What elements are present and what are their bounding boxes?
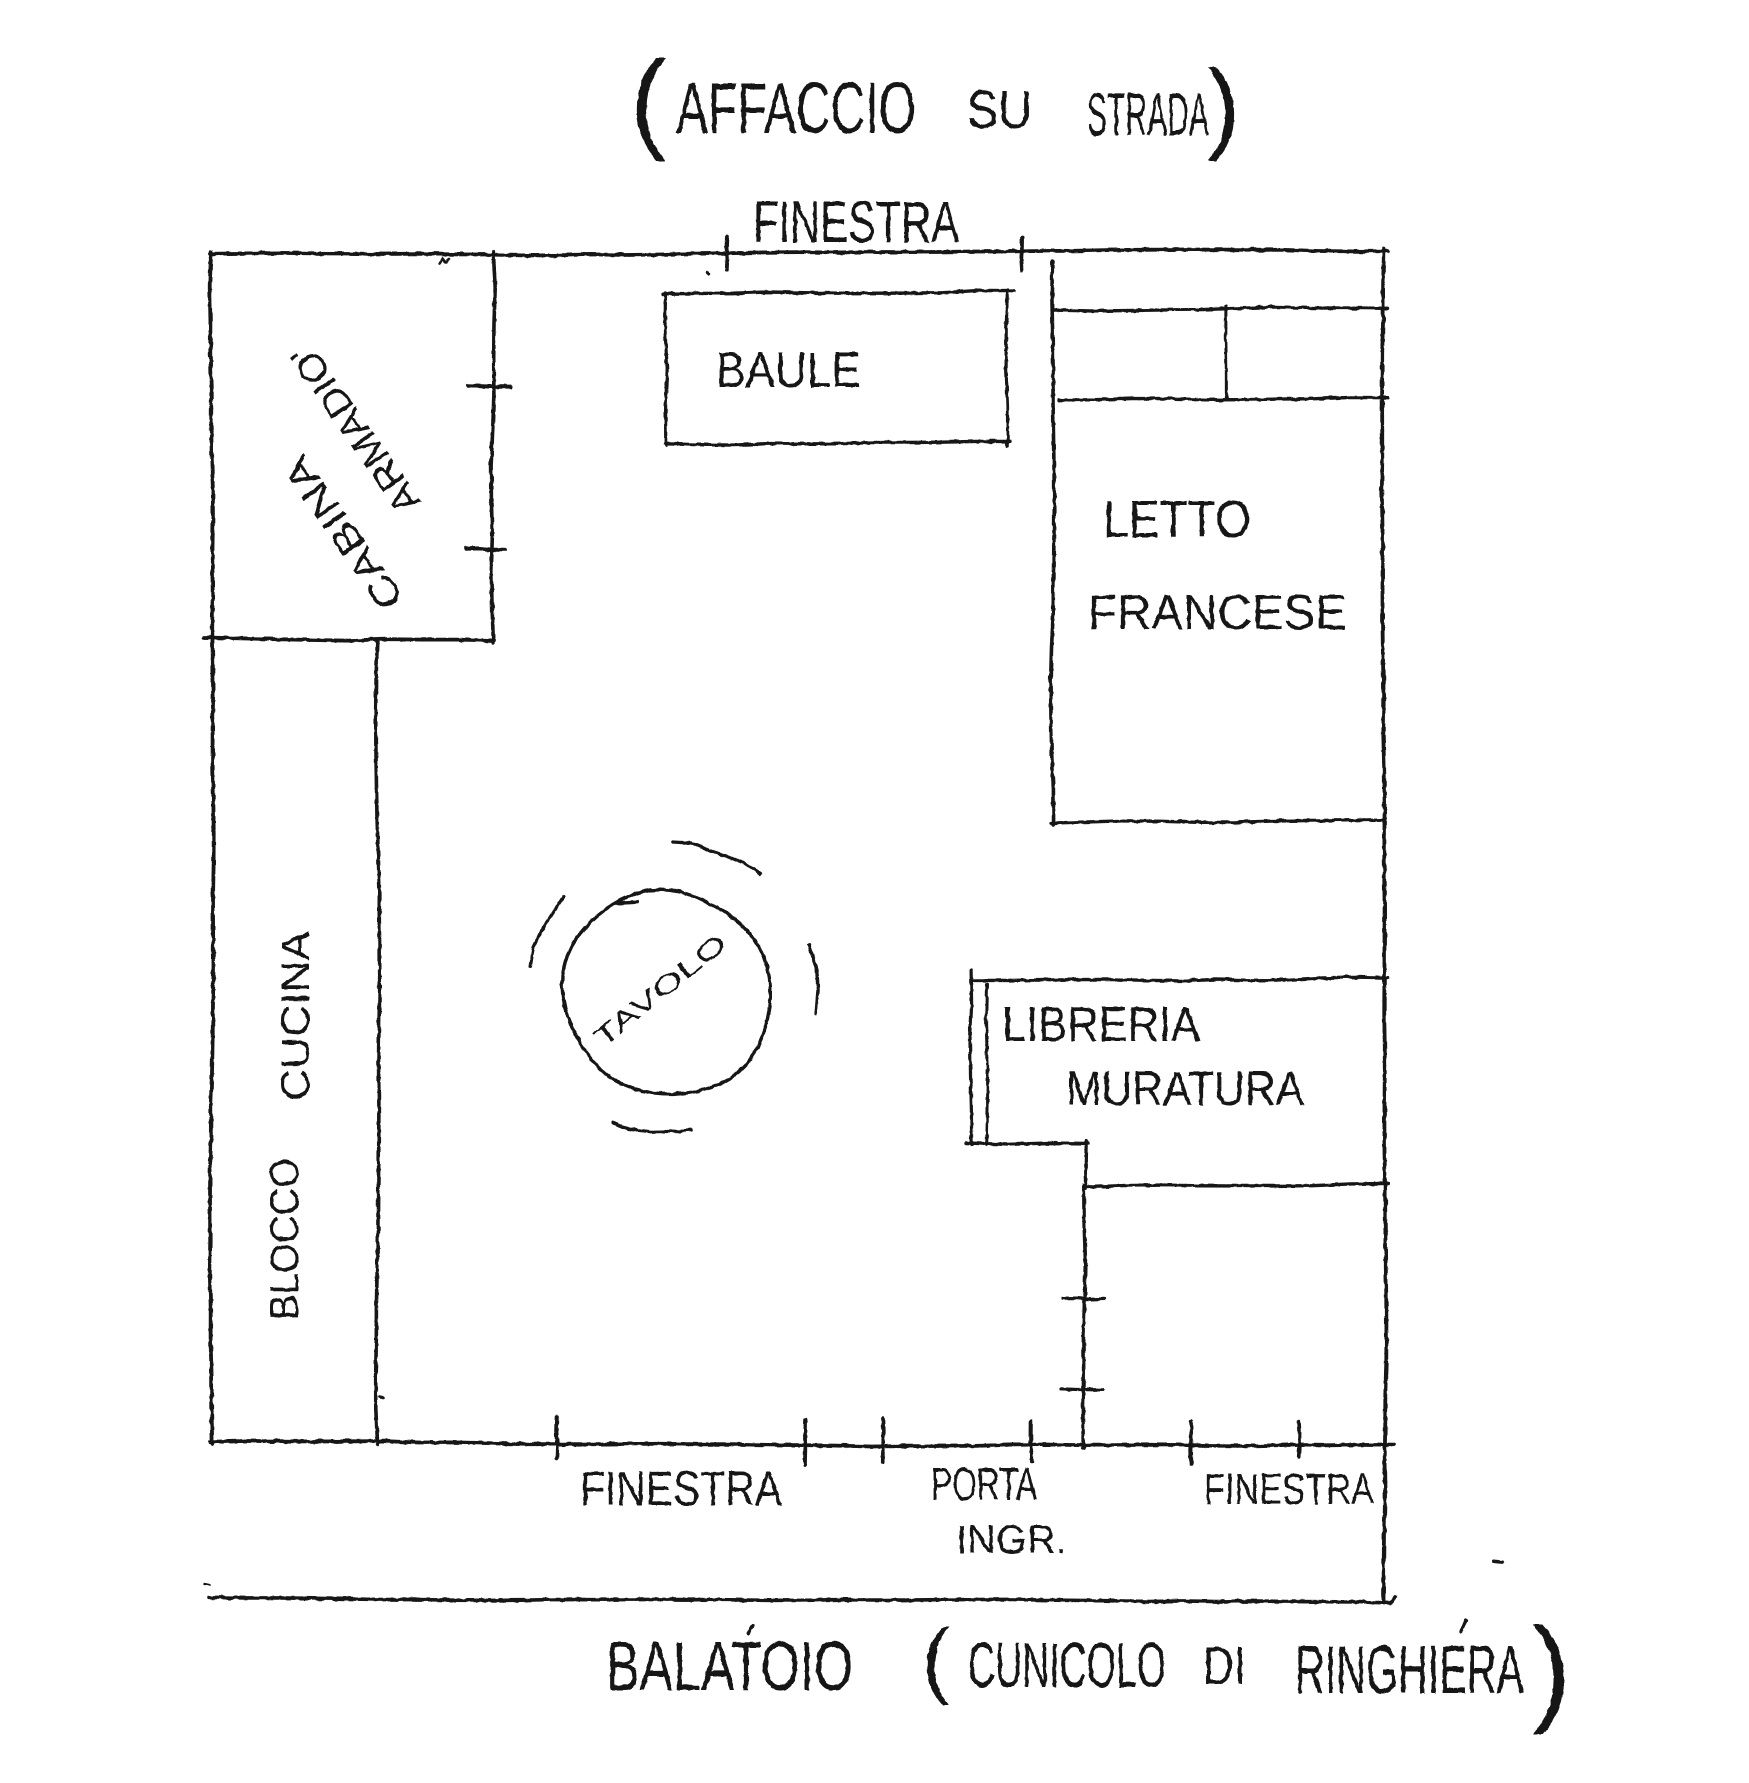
svg-text:BALATOIO: BALATOIO <box>606 1627 853 1705</box>
svg-text:(: ( <box>922 1612 950 1706</box>
svg-text:FINESTRA: FINESTRA <box>1204 1465 1375 1514</box>
svg-text:FRANCESE: FRANCESE <box>1088 586 1347 640</box>
svg-text:TAVOLO: TAVOLO <box>588 927 733 1052</box>
svg-text:SU: SU <box>967 80 1032 140</box>
svg-text:STRADA: STRADA <box>1087 81 1209 148</box>
svg-text:RINGHIERA: RINGHIERA <box>1295 1632 1524 1708</box>
svg-text:FINESTRA: FINESTRA <box>753 190 959 255</box>
svg-text:DI: DI <box>1203 1636 1246 1696</box>
svg-text:CUCINA: CUCINA <box>274 931 318 1101</box>
svg-text:BAULE: BAULE <box>716 342 861 398</box>
svg-text:): ) <box>1532 1604 1571 1736</box>
svg-text:INGR.: INGR. <box>956 1518 1067 1562</box>
svg-text:MURATURA: MURATURA <box>1066 1063 1304 1116</box>
svg-text:AFFACCIO: AFFACCIO <box>676 69 916 149</box>
svg-text:LETTO: LETTO <box>1103 491 1251 549</box>
svg-text:PORTA: PORTA <box>931 1458 1037 1510</box>
svg-text:(: ( <box>630 39 667 162</box>
svg-text:): ) <box>1207 50 1240 162</box>
svg-text:LIBRERIA: LIBRERIA <box>1002 998 1200 1052</box>
svg-text:CUNICOLO: CUNICOLO <box>968 1629 1166 1701</box>
svg-text:BLOCCO: BLOCCO <box>263 1158 307 1320</box>
svg-text:FINESTRA: FINESTRA <box>580 1463 782 1516</box>
